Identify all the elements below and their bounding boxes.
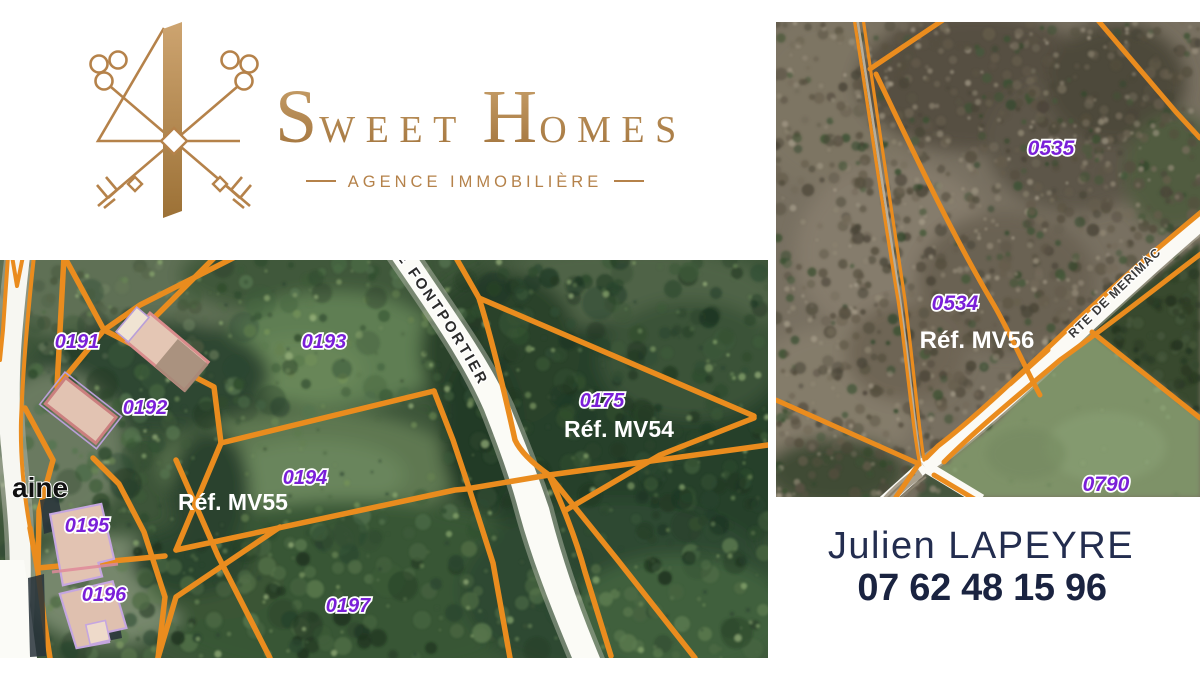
svg-text:0192: 0192 [123,397,168,419]
svg-text:Réf. MV56: Réf. MV56 [920,327,1035,354]
svg-text:Réf. MV55: Réf. MV55 [178,489,288,515]
svg-text:AGENCE IMMOBILIÈRE: AGENCE IMMOBILIÈRE [348,172,602,191]
svg-text:0197: 0197 [326,595,371,617]
svg-text:0175: 0175 [580,390,625,412]
svg-text:0790: 0790 [1083,473,1130,496]
svg-text:0196: 0196 [82,584,127,606]
svg-text:aine: aine [12,472,68,503]
svg-text:0191: 0191 [55,331,100,353]
svg-text:0195: 0195 [65,515,110,537]
svg-text:0193: 0193 [302,331,347,353]
svg-text:0535: 0535 [1028,137,1075,160]
svg-text:0534: 0534 [932,292,979,315]
svg-text:0194: 0194 [283,467,328,489]
svg-text:Réf. MV54: Réf. MV54 [564,416,674,442]
svg-text:SWEET HOMES: SWEET HOMES [275,75,687,159]
